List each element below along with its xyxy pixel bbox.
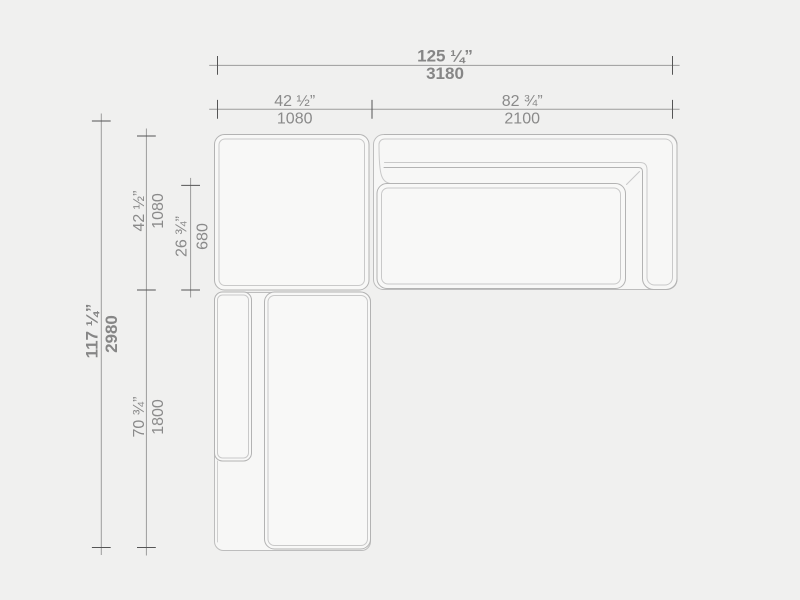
svg-text:42 ½”: 42 ½” [274, 93, 315, 110]
svg-text:2980: 2980 [102, 315, 121, 353]
svg-text:3180: 3180 [426, 64, 464, 83]
svg-text:1080: 1080 [277, 111, 313, 128]
svg-text:1800: 1800 [150, 399, 167, 435]
svg-text:125 ¼”: 125 ¼” [417, 47, 473, 66]
svg-text:680: 680 [194, 223, 211, 250]
svg-text:26 ¾”: 26 ¾” [173, 216, 190, 257]
svg-text:2100: 2100 [504, 111, 540, 128]
svg-text:70 ¾”: 70 ¾” [131, 397, 148, 438]
svg-text:82 ¾”: 82 ¾” [502, 93, 543, 110]
svg-text:42 ½”: 42 ½” [131, 191, 148, 232]
svg-text:117 ¼”: 117 ¼” [83, 304, 102, 359]
svg-text:1080: 1080 [150, 193, 167, 229]
